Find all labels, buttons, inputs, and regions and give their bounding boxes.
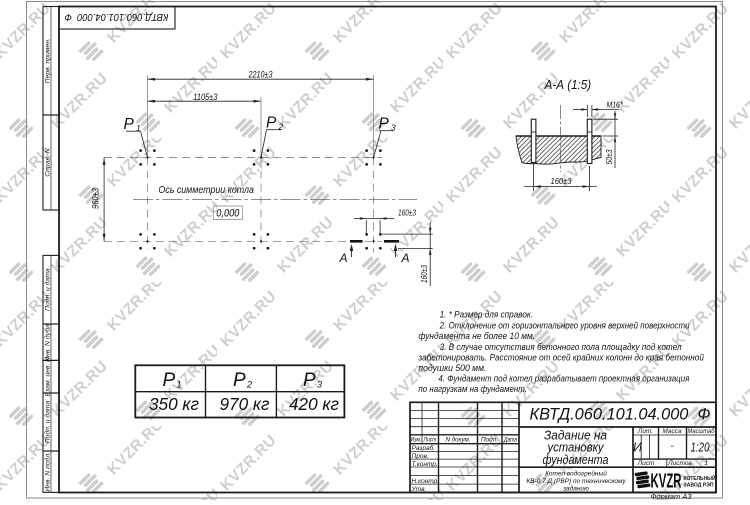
svg-text:KVZR: KVZR	[651, 471, 682, 493]
svg-text:Справ. N: Справ. N	[44, 148, 51, 177]
svg-text:4. Фундамент под котел разраба: 4. Фундамент под котел разрабатывает про…	[438, 373, 689, 383]
svg-text:160±3: 160±3	[551, 176, 572, 186]
svg-text:Инв. N подл.: Инв. N подл.	[43, 452, 51, 492]
svg-text:Н.контр.: Н.контр.	[412, 478, 440, 485]
svg-text:Утв.: Утв.	[411, 486, 427, 493]
svg-text:Р: Р	[233, 370, 246, 391]
svg-text:Т.контр.: Т.контр.	[412, 461, 438, 468]
svg-text:А-А (1:5): А-А (1:5)	[544, 78, 591, 92]
svg-text:КВТД.060.101.04.000 Ф: КВТД.060.101.04.000 Ф	[530, 406, 711, 424]
svg-text:Формат А3: Формат А3	[650, 492, 692, 500]
svg-text:подушки 500 мм.: подушки 500 мм.	[418, 363, 486, 373]
svg-text:Р: Р	[379, 116, 390, 133]
svg-text:Листов: Листов	[667, 460, 692, 467]
svg-text:2210±3: 2210±3	[248, 69, 273, 79]
svg-text:Масштаб: Масштаб	[688, 427, 715, 435]
svg-text:3: 3	[317, 380, 322, 390]
svg-text:Дата: Дата	[503, 437, 517, 444]
svg-text:50±3: 50±3	[604, 149, 614, 164]
svg-text:2: 2	[246, 380, 252, 390]
svg-text:Разраб.: Разраб.	[412, 444, 436, 452]
svg-text:Перв. примен.: Перв. примен.	[44, 38, 51, 83]
svg-text:КВ-0,7 Д (РВР) по техническому: КВ-0,7 Д (РВР) по техническому	[526, 478, 626, 485]
svg-text:Р: Р	[303, 370, 316, 391]
svg-text:970 кг: 970 кг	[220, 394, 270, 414]
svg-text:3. В случае отсутствия бетонно: 3. В случае отсутствия бетонного пола пл…	[440, 342, 682, 352]
svg-text:Подп.: Подп.	[481, 436, 498, 444]
svg-text:фундамента: фундамента	[543, 453, 609, 467]
svg-text:Котел водогрейный: Котел водогрейный	[545, 470, 607, 478]
svg-text:160±3: 160±3	[419, 265, 429, 283]
svg-text:фундамента не более 10 мм.: фундамента не более 10 мм.	[418, 331, 535, 341]
svg-text:Лист: Лист	[423, 437, 437, 444]
svg-text:по нагрузкам на фундамент.: по нагрузкам на фундамент.	[418, 384, 527, 394]
svg-text:Ось симметрии котла: Ось симметрии котла	[158, 184, 254, 196]
svg-text:М16*: М16*	[607, 100, 624, 110]
svg-text:Подп. и дата: Подп. и дата	[43, 268, 51, 311]
svg-text:1. * Размер для справок.: 1. * Размер для справок.	[440, 310, 533, 320]
svg-text:Лит.: Лит.	[637, 428, 653, 435]
svg-text:1105±3: 1105±3	[193, 92, 217, 102]
svg-text:Масса: Масса	[662, 428, 682, 435]
svg-text:960±3: 960±3	[91, 188, 101, 209]
svg-text:ЗАВОД РЭП: ЗАВОД РЭП	[684, 483, 714, 489]
svg-text:1: 1	[177, 380, 182, 390]
svg-text:А: А	[339, 251, 348, 265]
svg-text:КОТЕЛЬНЫЙ: КОТЕЛЬНЫЙ	[684, 474, 716, 482]
svg-text:2. Отклонение от горизонтально: 2. Отклонение от горизонтального уровня …	[439, 320, 690, 330]
svg-text:Р: Р	[266, 115, 277, 132]
svg-text:0,000: 0,000	[216, 208, 240, 220]
svg-text:забетонировать. Расстояние от: забетонировать. Расстояние от осей крайн…	[417, 353, 703, 363]
svg-text:420 кг: 420 кг	[289, 394, 339, 414]
svg-text:Лист: Лист	[637, 460, 655, 467]
svg-text:Взам. инв. N: Взам. инв. N	[44, 357, 51, 397]
svg-text:Подп. и дата: Подп. и дата	[43, 401, 51, 444]
svg-text:Р: Р	[124, 116, 135, 133]
svg-text:160±3: 160±3	[398, 208, 416, 218]
svg-text:N докум.: N докум.	[446, 436, 471, 444]
svg-text:КВТД.060.101.04.000 Ф: КВТД.060.101.04.000 Ф	[65, 11, 169, 23]
svg-text:1: 1	[704, 460, 708, 467]
svg-text:350 кг: 350 кг	[149, 394, 199, 414]
svg-text:Р: Р	[163, 370, 176, 391]
svg-text:заданию: заданию	[562, 485, 589, 493]
svg-text:И: И	[633, 441, 642, 455]
svg-text:Изм.: Изм.	[411, 437, 422, 444]
svg-text:А: А	[401, 251, 410, 265]
svg-text:1:20: 1:20	[691, 440, 711, 455]
svg-text:Инв. N дубл.: Инв. N дубл.	[43, 322, 51, 361]
svg-text:Пров.: Пров.	[412, 453, 429, 460]
